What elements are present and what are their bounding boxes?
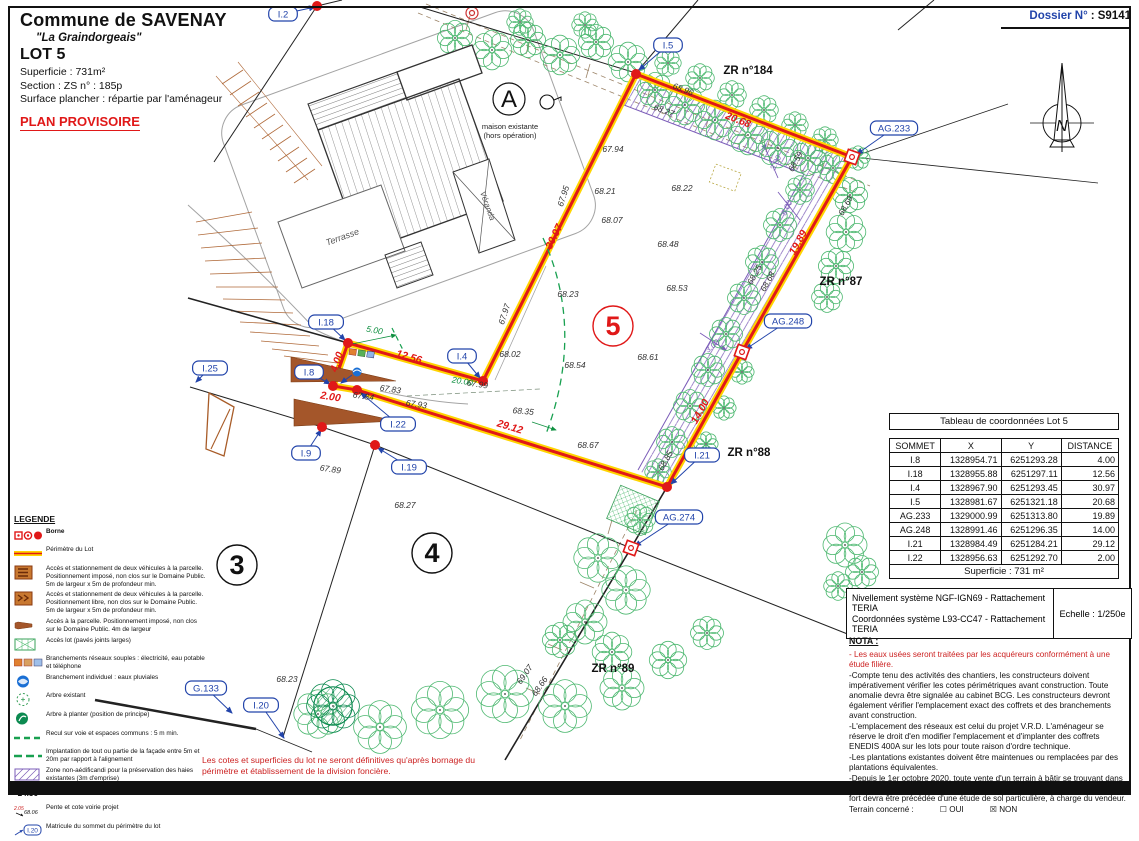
value-cell: 1328991.46 — [941, 523, 1001, 537]
setback-icon — [14, 730, 44, 746]
legend-item: Accès et stationnement de deux véhicules… — [14, 565, 206, 589]
legend-item-text: Branchement individuel : eaux pluviales — [46, 674, 206, 682]
levelling-system: Nivellement système NGF-IGN69 - Rattache… — [852, 593, 1048, 613]
value-cell: 30.97 — [1061, 481, 1118, 495]
coordinate-system: Coordonnées système L93-CC47 - Rattachem… — [852, 614, 1048, 634]
table-column-header: X — [941, 439, 1001, 453]
section-line: Section : ZS n° : 185p — [20, 80, 350, 92]
table-row: I.41328967.906251293.4530.97 — [890, 481, 1119, 495]
value-cell: 6251313.80 — [1001, 509, 1061, 523]
dossier-number: : S9141 — [1091, 10, 1131, 22]
nota-item: -Les plantations existantes doivent être… — [849, 753, 1130, 773]
lot-title: LOT 5 — [20, 46, 350, 64]
vertex-id-cell: I.21 — [890, 537, 941, 551]
legend-item: Recul sur voie et espaces communs : 5 m … — [14, 730, 206, 746]
vertex-id-cell: I.8 — [890, 453, 941, 467]
dossier-box: Dossier N° : S9141 — [1001, 4, 1131, 29]
surface-plancher-line: Surface plancher : répartie par l'aménag… — [20, 93, 350, 105]
table-footer: Superficie : 731 m² — [890, 565, 1119, 579]
terrain-label: Terrain concerné : — [849, 805, 914, 815]
value-cell: 6251284.21 — [1001, 537, 1061, 551]
value-cell: 1328955.88 — [941, 467, 1001, 481]
legend-item: Arbre à planter (position de principe) — [14, 711, 206, 727]
legend-item: Borne — [14, 528, 206, 544]
coordinates-table-title: Tableau de coordonnées Lot 5 — [889, 413, 1119, 430]
legend-item: I.20Matricule du sommet du périmètre du … — [14, 823, 206, 839]
value-cell: 1328956.63 — [941, 551, 1001, 565]
legend-item: Accès lot (pavés joints larges) — [14, 637, 206, 653]
legend-item-text: Recul sur voie et espaces communs : 5 m … — [46, 730, 206, 738]
facade-icon — [14, 748, 44, 764]
nota-item: -L'emplacement des réseaux est celui du … — [849, 722, 1130, 752]
bottom-bar — [8, 782, 1131, 795]
legend-item: Périmètre du Lot — [14, 546, 206, 562]
nota-title: NOTA : — [849, 636, 1130, 647]
legend-item: Implantation de tout ou partie de la faç… — [14, 748, 206, 764]
table-column-header: DISTANCE — [1061, 439, 1118, 453]
legend-item-text: Arbre à planter (position de principe) — [46, 711, 206, 719]
table-column-header: SOMMET — [890, 439, 941, 453]
scale-box: Echelle : 1/250e — [1053, 588, 1132, 639]
access-arrow-icon — [14, 618, 44, 634]
slope-icon: 2.0568.06 — [14, 804, 44, 820]
table-column-header: Y — [1001, 439, 1061, 453]
terrain-line: Terrain concerné : ☐ OUI ☒ NON — [849, 805, 1130, 815]
rainwater-icon — [14, 674, 44, 690]
tree-existing-icon — [14, 692, 44, 708]
table-row: I.211328984.496251284.2129.12 — [890, 537, 1119, 551]
legend-item: 2.0568.06Pente et cote voirie projet — [14, 804, 206, 820]
table-row: I.51328981.676251321.1820.68 — [890, 495, 1119, 509]
value-cell: 1329000.99 — [941, 509, 1001, 523]
access-free-icon — [14, 591, 44, 607]
nota-item: -Compte tenu des activités des chantiers… — [849, 671, 1130, 721]
vertex-id-icon: I.20 — [14, 823, 44, 839]
value-cell: 6251293.45 — [1001, 481, 1061, 495]
legend-item: Branchement individuel : eaux pluviales — [14, 674, 206, 690]
table-row: AG.2481328991.466251296.3514.00 — [890, 523, 1119, 537]
value-cell: 4.00 — [1061, 453, 1118, 467]
legend-item-text: Accès et stationnement de deux véhicules… — [46, 565, 206, 589]
red-footnote: Les cotes et superficies du lot ne seron… — [202, 755, 502, 777]
place-name: "La Graindorgeais" — [36, 32, 350, 44]
value-cell: 1328967.90 — [941, 481, 1001, 495]
vertex-id-cell: I.4 — [890, 481, 941, 495]
value-cell: 20.68 — [1061, 495, 1118, 509]
legend-item: Arbre existant — [14, 692, 206, 708]
value-cell: 1328954.71 — [941, 453, 1001, 467]
legend-item: Accès à la parcelle. Positionnement impo… — [14, 618, 206, 634]
nota-red-item: - Les eaux usées seront traitées par les… — [849, 650, 1130, 670]
vertex-id-cell: I.5 — [890, 495, 941, 509]
svg-text:2.05: 2.05 — [14, 806, 24, 812]
checkbox-non: ☒ NON — [990, 805, 1018, 815]
value-cell: 6251293.28 — [1001, 453, 1061, 467]
tree-planted-icon — [14, 711, 44, 727]
commune-title: Commune de SAVENAY — [20, 10, 350, 31]
plan-status: PLAN PROVISOIRE — [20, 114, 140, 131]
legend-item: Zone non-aédificandi pour la préservatio… — [14, 767, 206, 783]
legend-item-text: Matricule du sommet du périmètre du lot — [46, 823, 206, 831]
value-cell: 6251296.35 — [1001, 523, 1061, 537]
coordinates-table: Tableau de coordonnées Lot 5 SOMMETXYDIS… — [889, 413, 1119, 579]
svg-text:68.06: 68.06 — [24, 810, 39, 816]
legend-item-text: Zone non-aédificandi pour la préservatio… — [46, 767, 206, 783]
vertex-id-cell: I.22 — [890, 551, 941, 565]
legend-item-text: Pente et cote voirie projet — [46, 804, 206, 812]
legend-item: Branchements réseaux souples : électrici… — [14, 655, 206, 671]
legend-title: LEGENDE — [14, 514, 206, 525]
legend-item-text: Arbre existant — [46, 692, 206, 700]
legend-item-text: Accès à la parcelle. Positionnement impo… — [46, 618, 206, 634]
table-header-row: SOMMETXYDISTANCE — [890, 439, 1119, 453]
survey-system-box: Nivellement système NGF-IGN69 - Rattache… — [846, 588, 1132, 639]
title-block: Commune de SAVENAY "La Graindorgeais" LO… — [20, 10, 350, 131]
value-cell: 1328984.49 — [941, 537, 1001, 551]
table-row: I.181328955.886251297.1112.56 — [890, 467, 1119, 481]
vertex-id-cell: AG.233 — [890, 509, 941, 523]
table-row: I.81328954.716251293.284.00 — [890, 453, 1119, 467]
survey-systems: Nivellement système NGF-IGN69 - Rattache… — [846, 588, 1053, 639]
perimeter-icon — [14, 546, 44, 562]
legend-item-text: Borne — [46, 528, 206, 536]
value-cell: 2.00 — [1061, 551, 1118, 565]
value-cell: 29.12 — [1061, 537, 1118, 551]
value-cell: 12.56 — [1061, 467, 1118, 481]
table-row: I.221328956.636251292.702.00 — [890, 551, 1119, 565]
value-cell: 14.00 — [1061, 523, 1118, 537]
vertex-id-cell: I.18 — [890, 467, 941, 481]
legend-item-text: Implantation de tout ou partie de la faç… — [46, 748, 206, 764]
value-cell: 6251292.70 — [1001, 551, 1061, 565]
networks-icon — [14, 655, 44, 671]
legend-item: Accès et stationnement de deux véhicules… — [14, 591, 206, 615]
value-cell: 6251297.11 — [1001, 467, 1061, 481]
value-cell: 1328981.67 — [941, 495, 1001, 509]
legend-item-text: Accès et stationnement de deux véhicules… — [46, 591, 206, 615]
access-imposed-icon — [14, 565, 44, 581]
checkbox-oui: ☐ OUI — [940, 805, 964, 815]
table-row: AG.2331329000.996251313.8019.89 — [890, 509, 1119, 523]
legend-item-text: Périmètre du Lot — [46, 546, 206, 554]
superficie-line: Superficie : 731m² — [20, 66, 350, 78]
value-cell: 6251321.18 — [1001, 495, 1061, 509]
svg-text:I.20: I.20 — [27, 827, 38, 834]
borne-set-icon — [14, 528, 44, 544]
value-cell: 19.89 — [1061, 509, 1118, 523]
dossier-label: Dossier N° — [1029, 10, 1087, 22]
paved-icon — [14, 637, 44, 653]
legend-item-text: Branchements réseaux souples : électrici… — [46, 655, 206, 671]
cadastral-plan-page: { "header": { "commune": "Commune de SAV… — [0, 0, 1139, 796]
non-aedificandi-icon — [14, 767, 44, 783]
legend-item-text: Accès lot (pavés joints larges) — [46, 637, 206, 645]
vertex-id-cell: AG.248 — [890, 523, 941, 537]
